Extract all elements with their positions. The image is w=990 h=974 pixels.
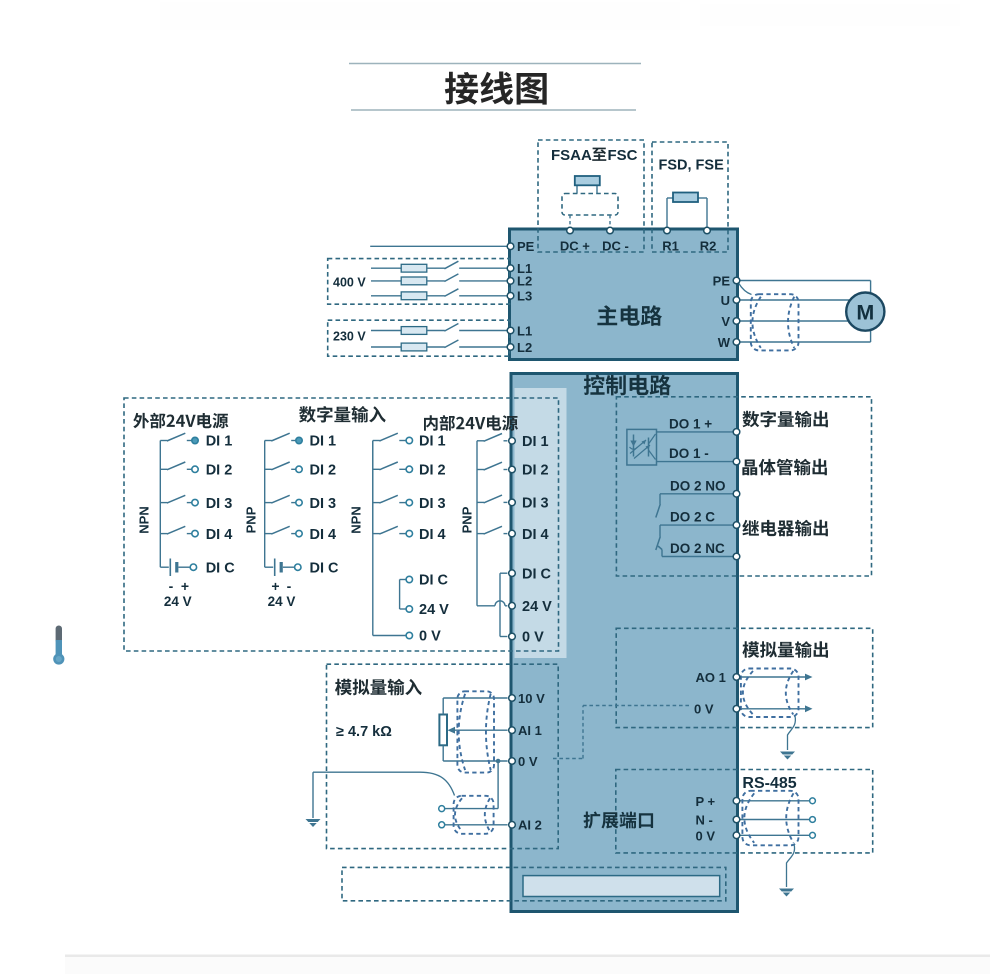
svg-text:DO 2 NO: DO 2 NO (670, 478, 726, 493)
svg-text:AO 1: AO 1 (696, 670, 726, 685)
svg-text:-: - (169, 578, 174, 594)
svg-text:24 V: 24 V (164, 594, 192, 609)
svg-text:DI C: DI C (522, 566, 552, 582)
svg-text:FSAA: FSAA (551, 147, 592, 164)
svg-text:FSD, FSE: FSD, FSE (659, 158, 725, 174)
svg-text:400 V: 400 V (333, 276, 366, 290)
svg-text:P +: P + (696, 794, 716, 809)
svg-text:L2: L2 (517, 274, 532, 289)
svg-text:+: + (181, 578, 189, 594)
svg-text:DI C: DI C (419, 573, 449, 589)
svg-text:L3: L3 (517, 289, 532, 304)
svg-text:PE: PE (713, 274, 731, 289)
svg-text:DI 2: DI 2 (522, 463, 549, 479)
svg-text:L1: L1 (517, 323, 532, 338)
svg-text:DO 1 +: DO 1 + (669, 416, 712, 431)
svg-text:230 V: 230 V (333, 330, 366, 344)
svg-text:DC -: DC - (602, 239, 629, 254)
svg-text:24 V: 24 V (268, 594, 296, 609)
svg-text:24 V: 24 V (522, 599, 552, 615)
svg-text:R1: R1 (662, 239, 679, 254)
svg-text:-: - (287, 578, 292, 594)
svg-text:AI 2: AI 2 (518, 818, 542, 833)
svg-text:10 V: 10 V (518, 691, 545, 706)
svg-text:N -: N - (696, 813, 713, 828)
svg-text:0 V: 0 V (694, 702, 714, 717)
svg-text:DI 2: DI 2 (310, 463, 337, 479)
svg-text:PNP: PNP (460, 506, 475, 533)
svg-text:DI 1: DI 1 (310, 434, 337, 450)
svg-text:DO 1 -: DO 1 - (669, 446, 709, 461)
svg-text:DI 4: DI 4 (206, 527, 233, 543)
svg-text:PE: PE (517, 239, 535, 254)
svg-text:NPN: NPN (137, 506, 152, 533)
svg-text:M: M (856, 300, 874, 324)
svg-text:24 V: 24 V (419, 602, 449, 618)
svg-text:DI 1: DI 1 (522, 434, 549, 450)
svg-text:AI 1: AI 1 (518, 723, 542, 738)
svg-text:DI 4: DI 4 (310, 527, 337, 543)
svg-text:0 V: 0 V (518, 754, 538, 769)
svg-text:DO 2 NC: DO 2 NC (670, 541, 725, 556)
svg-text:0 V: 0 V (419, 629, 441, 645)
svg-text:V: V (721, 314, 730, 329)
svg-text:FSC: FSC (608, 147, 638, 164)
svg-text:DI 3: DI 3 (522, 496, 549, 512)
svg-text:U: U (721, 293, 730, 308)
svg-text:R2: R2 (700, 239, 717, 254)
svg-text:DI 1: DI 1 (206, 434, 233, 450)
svg-text:DO 2 C: DO 2 C (670, 509, 715, 524)
svg-text:W: W (718, 335, 731, 350)
svg-text:DI 2: DI 2 (206, 463, 233, 479)
svg-text:0 V: 0 V (696, 828, 716, 843)
svg-text:L2: L2 (517, 340, 532, 355)
svg-text:DI 3: DI 3 (419, 496, 446, 512)
svg-text:DI 3: DI 3 (206, 496, 233, 512)
svg-text:DI C: DI C (206, 560, 236, 576)
svg-text:+: + (271, 578, 279, 594)
svg-text:PNP: PNP (244, 506, 259, 533)
svg-text:RS-485: RS-485 (742, 775, 796, 792)
svg-text:NPN: NPN (349, 506, 364, 533)
svg-text:DI C: DI C (310, 560, 340, 576)
svg-text:≥ 4.7 kΩ: ≥ 4.7 kΩ (336, 724, 392, 740)
svg-text:DI 4: DI 4 (522, 527, 549, 543)
svg-text:0 V: 0 V (522, 630, 544, 646)
svg-text:DI 1: DI 1 (419, 434, 446, 450)
svg-text:DI 3: DI 3 (310, 496, 337, 512)
svg-text:DC +: DC + (560, 239, 590, 254)
svg-text:DI 4: DI 4 (419, 527, 446, 543)
svg-text:DI 2: DI 2 (419, 463, 446, 479)
